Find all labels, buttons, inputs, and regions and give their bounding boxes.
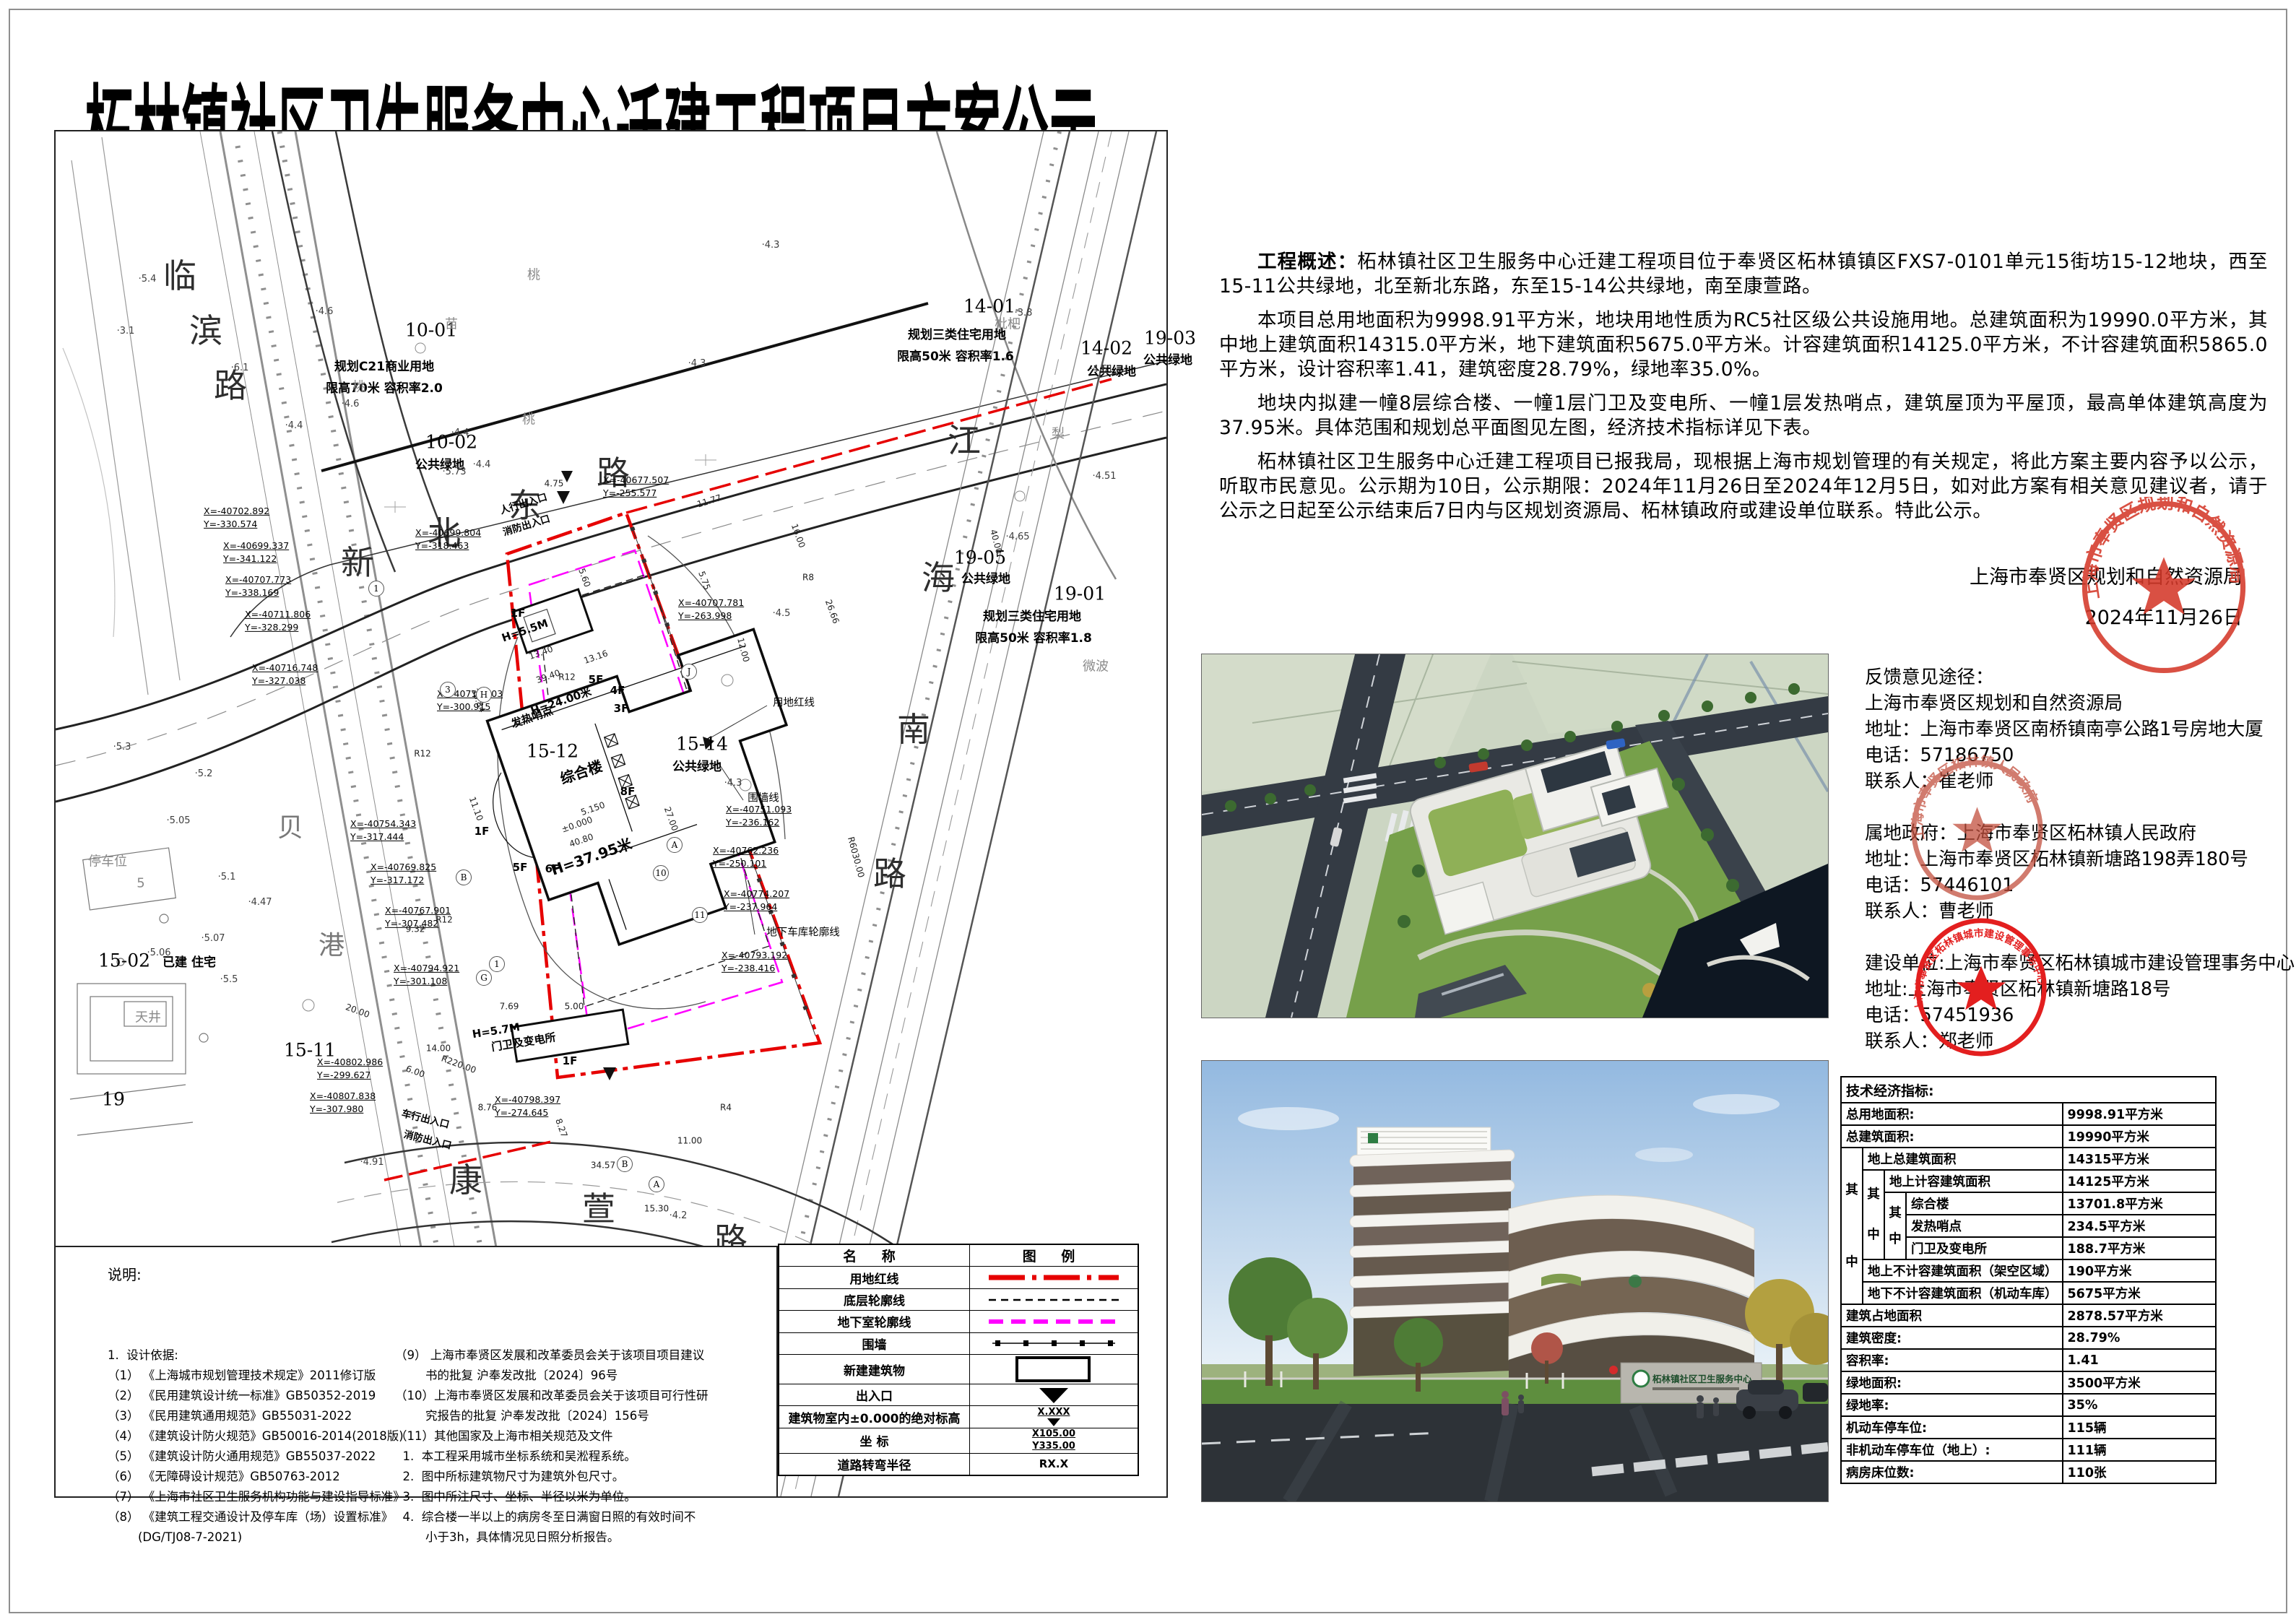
map-label: H [476,687,492,703]
tech-label: 病房床位数: [1841,1461,2063,1483]
map-label: 16.00 [789,523,807,550]
map-label: 地下车库轮廓线 [766,927,840,938]
map-label: 15-14 [676,734,728,755]
tech-label: 绿地面积: [1841,1371,2063,1394]
map-label: ·5.2 [195,769,213,779]
tech-value: 111辆 [2063,1439,2216,1461]
tech-label: 地下不计容建筑面积（机动车库） [1863,1282,2063,1304]
map-label: J [681,664,697,680]
contact-line: 上海市奉贤区规划和自然资源局 [1865,690,2274,716]
map-label: 1F [511,608,526,620]
map-label: X=-40762.236 Y=-250.101 [713,844,779,870]
map-label: ·5.3 [113,742,131,753]
map-label: 限高50米 容积率1.6 [897,351,1014,364]
map-label: R220.00 [440,1054,477,1075]
tech-label: 总用地面积: [1841,1103,2063,1125]
map-label: ·4.4 [473,460,491,470]
legend-name: 坐 标 [779,1428,970,1453]
legend-name: 地下室轮廓线 [779,1311,970,1332]
tech-label: 容积率: [1841,1349,2063,1371]
coord-x-glyph: X105.00 [1032,1428,1075,1441]
map-label: 19-01 [1054,584,1106,604]
map-label: 15-12 [527,741,579,762]
map-label: 用地红线 [773,698,815,708]
map-label: 8F [620,786,636,798]
map-label: ·4.4 [451,428,469,438]
overview-paragraph: 本项目总用地面积为9998.91平方米，地块用地性质为RC5社区级公共设施用地。… [1219,308,2268,382]
map-label: X=-40794.921 Y=-301.108 [394,962,459,988]
map-label: ·4.61 [1089,365,1113,375]
tech-value: 19990平方米 [2063,1125,2216,1148]
building-sign-text: 柘林镇社区卫生服务中心 [1652,1374,1752,1384]
map-label: ·5.07 [201,934,225,944]
map-label: 14-01 [963,296,1015,317]
map-label: 11.77 [696,493,723,509]
map-label: X=-40793.192 Y=-238.416 [722,949,787,975]
map-label: 26.66 [823,599,841,625]
map-label: 5.00 [565,1002,584,1012]
overview-paragraph: 工程概述：柘林镇社区卫生服务中心迁建工程项目位于奉贤区柘林镇镇区FXS7-010… [1219,250,2268,299]
notes-heading: 说明: [108,1263,142,1284]
signature-block: 上海市奉贤区规划和自然资源局 2024年11月26日 [1221,558,2243,638]
map-label: ·4.3 [762,240,780,251]
note-line: （9） 上海市奉贤区发展和改革委员会关于该项目项目建议 [395,1345,771,1366]
map-label: ·4.5 [773,609,791,619]
map-label: ·4.51 [1092,472,1116,482]
map-label: 车行出入口 [401,1109,451,1130]
map-label: X=-40699.337 Y=-341.122 [223,539,289,565]
map-label: ·5.73 [442,467,466,477]
map-label: 滨 [189,313,222,348]
note-line: 3. 图中所注尺寸、坐标、半径以米为单位。 [395,1487,771,1507]
map-label: H=37.95米 [549,836,633,878]
map-label: ·3.8 [1015,308,1033,318]
contact-line: 联系人：曹老师 [1865,898,2274,924]
legend-name: 出入口 [779,1384,970,1405]
map-label: 39.40 [535,668,562,685]
tech-label: 发热哨点 [1906,1215,2063,1237]
map-label: 1 [489,956,505,972]
tech-value: 1.41 [2063,1349,2216,1371]
tech-value: 9998.91平方米 [2063,1103,2216,1125]
note-line: 书的批复 沪奉发改批〔2024〕96号 [395,1366,771,1386]
map-label: A [649,1176,664,1192]
tech-value: 190平方米 [2063,1259,2216,1282]
map-label: B [617,1156,633,1172]
legend-name: 围墙 [779,1333,970,1354]
map-label: 桃 [522,414,535,428]
contact-line: 电话：57186750 [1865,742,2274,768]
map-label: X=-40798.397 Y=-274.645 [495,1093,560,1119]
map-label: 港 [319,932,345,960]
map-label: ·4.3 [688,359,706,369]
map-label: 7.69 [500,1002,519,1012]
map-label: X=-40767.901 Y=-307.482 [385,904,451,930]
map-label: 消防出入口 [403,1129,453,1151]
legend-header-name: 名 称 [779,1245,970,1266]
map-label: 10 [653,865,669,881]
map-label: X=-40754.343 Y=-317.444 [350,817,416,843]
map-label: ·4.4 [285,421,303,431]
tech-value: 3500平方米 [2063,1371,2216,1394]
project-overview: 工程概述：柘林镇社区卫生服务中心迁建工程项目位于奉贤区柘林镇镇区FXS7-010… [1219,250,2268,533]
tech-value: 35% [2063,1394,2216,1416]
contact-line: 联系人：崔老师 [1865,768,2274,794]
map-label: ·5.06 [147,948,170,958]
note-line: （5） 《建筑设计防火通用规范》GB55037-2022 [108,1447,418,1467]
note-line: (DG/TJ08-7-2021) [108,1527,418,1548]
note-line: （6） 《无障碍设计规范》GB50763-2012 [108,1467,418,1487]
map-label: 1 [368,581,384,597]
map-label: 5.60 [577,567,592,588]
map-label: 3 [440,682,456,698]
tech-value: 115辆 [2063,1416,2216,1439]
signature-org: 上海市奉贤区规划和自然资源局 [1221,558,2243,598]
contact-block: 反馈意见途径：上海市奉贤区规划和自然资源局地址：上海市奉贤区南桥镇南亭公路1号房… [1865,664,2274,1054]
map-label: 6F [545,864,560,875]
map-label: 限高50米 容积率1.8 [975,633,1092,646]
note-line: （1） 《上海城市规划管理技术规定》2011修订版 [108,1366,418,1386]
map-label: 萱 [582,1192,615,1226]
map-label: 新 [341,545,374,580]
note-line: 2. 图中所标建筑物尺寸为建筑外包尺寸。 [395,1467,771,1487]
contact-line [1865,924,2274,950]
tech-value: 14315平方米 [2063,1148,2216,1170]
tech-label: 总建筑面积: [1841,1125,2063,1148]
contact-line: 地址:上海市奉贤区柘林镇新塘路18号 [1865,976,2274,1002]
map-label: 3F [614,703,629,715]
map-label: 限高70米 容积率2.0 [326,383,443,396]
contact-line: 电话：57446101 [1865,872,2274,898]
contact-line [1865,794,2274,820]
map-label: ·5.1 [218,872,236,882]
map-label: X=-40707.773 Y=-338.169 [225,573,291,599]
public-notice-sheet: 柘林镇社区卫生服务中心迁建工程项目方案公示 [0,0,2296,1622]
note-line: （2） 《民用建筑设计统一标准》GB50352-2019 [108,1386,418,1406]
map-label: G [476,970,492,986]
map-label: 19 [102,1089,125,1110]
map-label: ·5.4 [139,274,157,285]
map-label: 19-03 [1144,328,1196,349]
map-label: R6030.00 [846,836,865,878]
map-label: R8 [802,573,814,583]
map-label: ·4.3 [724,779,742,789]
map-label: 13.40 [528,644,555,661]
render-street-view: 柘林镇社区卫生服务中心 [1201,1060,1829,1502]
map-label: 苗 [445,318,458,332]
tech-nest-label: 其中 [1863,1170,1884,1259]
elevation-glyph: X.XXX [1037,1407,1070,1418]
legend-name: 建筑物室内±0.000的绝对标高 [779,1406,970,1427]
map-label: 11 [692,907,708,923]
overview-paragraph: 地块内拟建一幢8层综合楼、一幢1层门卫及变电所、一幢1层发热哨点，建筑屋顶为平屋… [1219,391,2268,441]
map-label: 综合楼 [558,758,605,786]
overview-lead: 工程概述： [1257,251,1357,273]
map-label: X=-40807.838 Y=-307.980 [310,1090,376,1116]
map-label: 4F [610,685,625,697]
map-label: 5 [137,877,144,891]
contact-line: 建设单位:上海市奉贤区柘林镇城市建设管理事务中心 [1865,950,2274,976]
map-label: 34.57 [591,1161,615,1171]
map-label: 13.16 [583,649,610,665]
contact-line: 反馈意见途径： [1865,664,2274,690]
notes-left: 1. 设计依据:（1） 《上海城市规划管理技术规定》2011修订版（2） 《民用… [108,1285,418,1548]
tech-value: 2878.57平方米 [2063,1304,2216,1327]
map-label: 15-02 [98,950,150,971]
map-label: 已建 住宅 [163,957,216,970]
note-line: （8） 《建筑工程交通设计及停车库（场）设置标准》 [108,1507,418,1527]
map-label: B [456,869,472,885]
map-label: 6.00 [404,1064,425,1080]
map-label: ·3.1 [117,326,135,337]
map-label: 1F [475,826,490,838]
radius-glyph: RX.X [970,1454,1138,1475]
tech-label: 综合楼 [1906,1192,2063,1215]
tech-label: 地上总建筑面积 [1863,1148,2063,1170]
signature-date: 2024年11月26日 [1221,598,2243,638]
new-building-symbol-icon [1014,1355,1093,1384]
tech-label: 绿地率: [1841,1394,2063,1416]
site-plan: 10-01规划C21商业用地限高70米 容积率2.010-02公共绿地苗桃桃桃枇… [54,130,1168,1498]
map-label: R4 [720,1103,732,1113]
map-label: X=-40751.093 Y=-236.162 [726,803,792,829]
map-label: 公共绿地 [961,573,1010,586]
map-label: 5.75 [697,570,712,591]
map-label: 12.00 [735,637,750,663]
map-label: 桃 [527,269,540,283]
map-label: X=-40769.825 Y=-317.172 [371,861,436,887]
map-label: 天井 [135,1012,161,1025]
note-line: （4） 《建筑设计防火规范》GB50016-2014(2018版) [108,1426,418,1447]
map-label: 1F [563,1056,578,1067]
map-label: ·4.91 [360,1158,384,1168]
note-line: （11）其他国家及上海市相关规范及文件 [395,1426,771,1447]
map-label: 微波 [1083,661,1109,675]
map-label: 梨 [1052,428,1065,442]
tech-label: 门卫及变电所 [1906,1237,2063,1259]
map-label: 11.10 [467,796,485,823]
tech-label: 地上计容建筑面积 [1884,1170,2063,1192]
map-label: 康 [449,1163,482,1197]
map-label: ·4.6 [316,307,334,317]
contact-line: 电话：57451936 [1865,1002,2274,1028]
map-label: 停车位 [88,856,127,869]
map-label: 规划三类住宅用地 [983,611,1081,624]
contact-line: 属地政府：上海市奉贤区柘林镇人民政府 [1865,820,2274,846]
legend-name: 道路转弯半径 [779,1454,970,1475]
map-label: ±0.000 [560,815,594,834]
map-label: 桃 [352,381,365,395]
redline-symbol-icon [989,1273,1119,1282]
map-label: 11.00 [677,1137,702,1146]
contact-line: 地址：上海市奉贤区柘林镇新塘路198弄180号 [1865,846,2274,872]
map-label: 贝 [277,815,303,842]
note-line: 4. 综合楼一半以上的病房冬至日满窗日照的有效时间不 [395,1507,771,1527]
tech-value: 13701.8平方米 [2063,1192,2216,1215]
map-label: 江 [948,423,981,458]
map-label: 40.80 [568,832,595,849]
note-line: 1. 设计依据: [108,1345,418,1366]
map-label: X=-40707.781 Y=-263.998 [678,597,744,623]
map-label: 规划C21商业用地 [334,361,434,374]
tech-value: 188.7平方米 [2063,1237,2216,1259]
basement-symbol-icon [989,1318,1119,1325]
map-label: X=-40702.892 Y=-330.574 [204,505,269,531]
map-label: X=-40711.806 Y=-328.299 [245,608,311,634]
map-label: 8.27 [554,1117,569,1138]
legend-table: 名 称 图 例 用地红线 底层轮廓线 地下室轮廓线 围墙 新建建筑物 出入口 建… [778,1244,1139,1476]
tech-indicator-table: 技术经济指标: 总用地面积:9998.91平方米 总建筑面积:19990平方米 … [1840,1076,2217,1484]
map-label: ·6.1 [231,363,249,373]
tech-label: 建筑密度: [1841,1327,2063,1349]
note-line: 究报告的批复 沪奉发改批〔2024〕156号 [395,1406,771,1426]
note-line: 1. 本工程采用城市坐标系统和吴淞程系统。 [395,1447,771,1467]
note-line: （10）上海市奉贤区发展和改革委员会关于该项目可行性研 [395,1386,771,1406]
tech-label: 建筑占地面积 [1841,1304,2063,1327]
map-label: 14-02 [1080,338,1132,359]
map-label: 临 [163,259,196,293]
tech-label: 机动车停车位: [1841,1416,2063,1439]
map-label: ·4.6 [342,399,360,409]
outline-symbol-icon [989,1297,1119,1303]
tech-value: 14125平方米 [2063,1170,2216,1192]
legend-name: 新建建筑物 [779,1355,970,1384]
tech-value: 234.5平方米 [2063,1215,2216,1237]
map-label: 南 [897,712,930,747]
map-label: A [667,837,683,853]
map-label: 15.30 [644,1205,669,1214]
note-line: （3） 《民用建筑通用规范》GB55031-2022 [108,1406,418,1426]
map-label: 27.00 [662,806,680,833]
map-label: ·5.05 [166,816,190,826]
tech-label: 非机动车停车位（地上）: [1841,1439,2063,1461]
map-label: 5F [589,675,604,686]
tech-nest-label: 其中 [1841,1148,1863,1304]
render-street-graphic: 柘林镇社区卫生服务中心 [1202,1061,1828,1501]
notes-panel: 说明: 1. 设计依据:（1） 《上海城市规划管理技术规定》2011修订版（2）… [56,1246,778,1496]
map-label: X=-40802.986 Y=-299.627 [317,1056,383,1082]
map-label: 公共绿地 [1143,355,1192,368]
wall-symbol-icon [992,1339,1115,1348]
map-label: H=5.5M [501,618,550,645]
map-label: 海 [922,560,955,595]
map-label: 路 [873,856,906,891]
tech-value: 5675平方米 [2063,1282,2216,1304]
map-label: X=-40774.207 Y=-237.964 [724,888,789,914]
map-label: 5F [513,862,528,874]
tech-value: 28.79% [2063,1327,2216,1349]
contact-line: 地址：上海市奉贤区南桥镇南亭公路1号房地大厦 [1865,716,2274,742]
map-label: 规划三类住宅用地 [908,329,1006,342]
overview-paragraph: 柘林镇社区卫生服务中心迁建工程项目已报我局，现根据上海市规划管理的有关规定，将此… [1219,450,2268,524]
coord-y-glyph: Y335.00 [1032,1441,1075,1453]
map-label: X=-40716.748 Y=-327.038 [252,662,318,688]
map-label: R12 [414,750,431,759]
render-aerial-graphic [1202,654,1828,1018]
map-label: ·4.47 [248,898,272,908]
map-label: ·4.2 [670,1211,688,1221]
map-label: 14.00 [426,1044,451,1054]
map-label: 公共绿地 [672,761,722,774]
map-label: ·5.5 [220,975,238,985]
tech-value: 110张 [2063,1461,2216,1483]
map-label: R12 [558,673,576,682]
contact-line: 联系人：郑老师 [1865,1028,2274,1054]
tech-table-title: 技术经济指标: [1841,1077,2216,1103]
map-label: 20.00 [345,1002,371,1020]
notes-right: （9） 上海市奉贤区发展和改革委员会关于该项目项目建议 书的批复 沪奉发改批〔2… [395,1285,771,1548]
note-line: （7） 《上海市社区卫生服务机构功能与建设指导标准》 [108,1487,418,1507]
render-aerial-view [1201,654,1829,1018]
map-label: X=-40699.804 Y=-318.463 [415,526,481,552]
entrance-symbol-icon [1036,1386,1072,1405]
tech-label: 地上不计容建筑面积（架空区域） [1863,1259,2063,1282]
legend-name: 底层轮廓线 [779,1289,970,1310]
map-label: ·4.65 [1005,532,1029,542]
legend-header-symbol: 图 例 [970,1245,1138,1266]
map-label: 4.75 [545,480,564,489]
map-label: 5.150 [580,800,607,817]
note-line: 小于3h，具体情况见日照分析报告。 [395,1527,771,1548]
map-label: X=-40677.507 Y=-255.577 [603,474,669,500]
tech-nest-label: 其中 [1884,1192,1906,1259]
elevation-symbol-icon [1043,1418,1065,1428]
legend-name: 用地红线 [779,1267,970,1288]
